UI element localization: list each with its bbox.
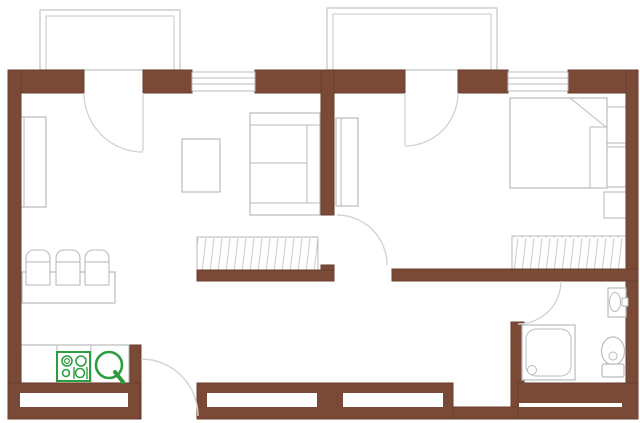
- coffee-table: [182, 139, 220, 192]
- door-bedroom-swing-arc: [405, 93, 458, 146]
- bed: [510, 98, 607, 188]
- closet-living-hatched: [197, 237, 318, 270]
- wall-bottom-mid-window-inset-2: [343, 393, 443, 407]
- chair-2-seat: [56, 262, 80, 285]
- bathroom-sink-faucet: [622, 298, 628, 306]
- wall-bottom-bathroom-seam: [519, 403, 622, 407]
- apartment-floor-plan: [0, 0, 640, 423]
- nightstand-1: [607, 107, 627, 143]
- wall-left: [8, 70, 21, 419]
- chair-1-seat: [26, 262, 50, 285]
- balcony-right-outer: [327, 8, 497, 70]
- wall-top-4: [458, 70, 508, 93]
- toilet-flush-button: [609, 352, 617, 360]
- wall-corridor: [392, 269, 638, 281]
- balcony-right-inner: [333, 14, 491, 70]
- window-top-left: [192, 72, 255, 91]
- wall-right: [626, 70, 638, 419]
- door-living-swing-arc: [84, 93, 143, 152]
- balcony-left-outer: [40, 10, 180, 70]
- wall-bottom-mid-window-inset-1: [207, 393, 317, 407]
- door-corridor-swing-arc: [337, 215, 387, 265]
- floor-plan-canvas: [0, 0, 640, 423]
- wall-partition-upper: [321, 70, 334, 215]
- shower-drain: [528, 366, 537, 375]
- wall-living-closet: [197, 270, 334, 281]
- door-bathroom-swing-arc: [518, 281, 561, 324]
- cabinet-bedroom: [336, 118, 358, 206]
- closet-bedroom-hatched: [512, 236, 626, 270]
- nightstand-2: [607, 147, 627, 187]
- sofa: [250, 113, 320, 215]
- bathroom-sink-bowl: [610, 293, 621, 312]
- door-entry-swing-arc: [141, 359, 198, 416]
- chair-3-seat: [85, 262, 109, 285]
- bedside-stool: [604, 192, 627, 218]
- wall-top-2: [143, 70, 192, 93]
- wall-bottom-bathroom: [518, 383, 638, 419]
- toilet-tank: [602, 364, 624, 377]
- toilet-bowl: [602, 337, 625, 365]
- wall-bottom-hall: [453, 407, 518, 419]
- balcony-left-inner: [46, 16, 174, 70]
- wall-bottom-left-window-inset: [20, 393, 128, 407]
- window-top-right: [508, 72, 568, 91]
